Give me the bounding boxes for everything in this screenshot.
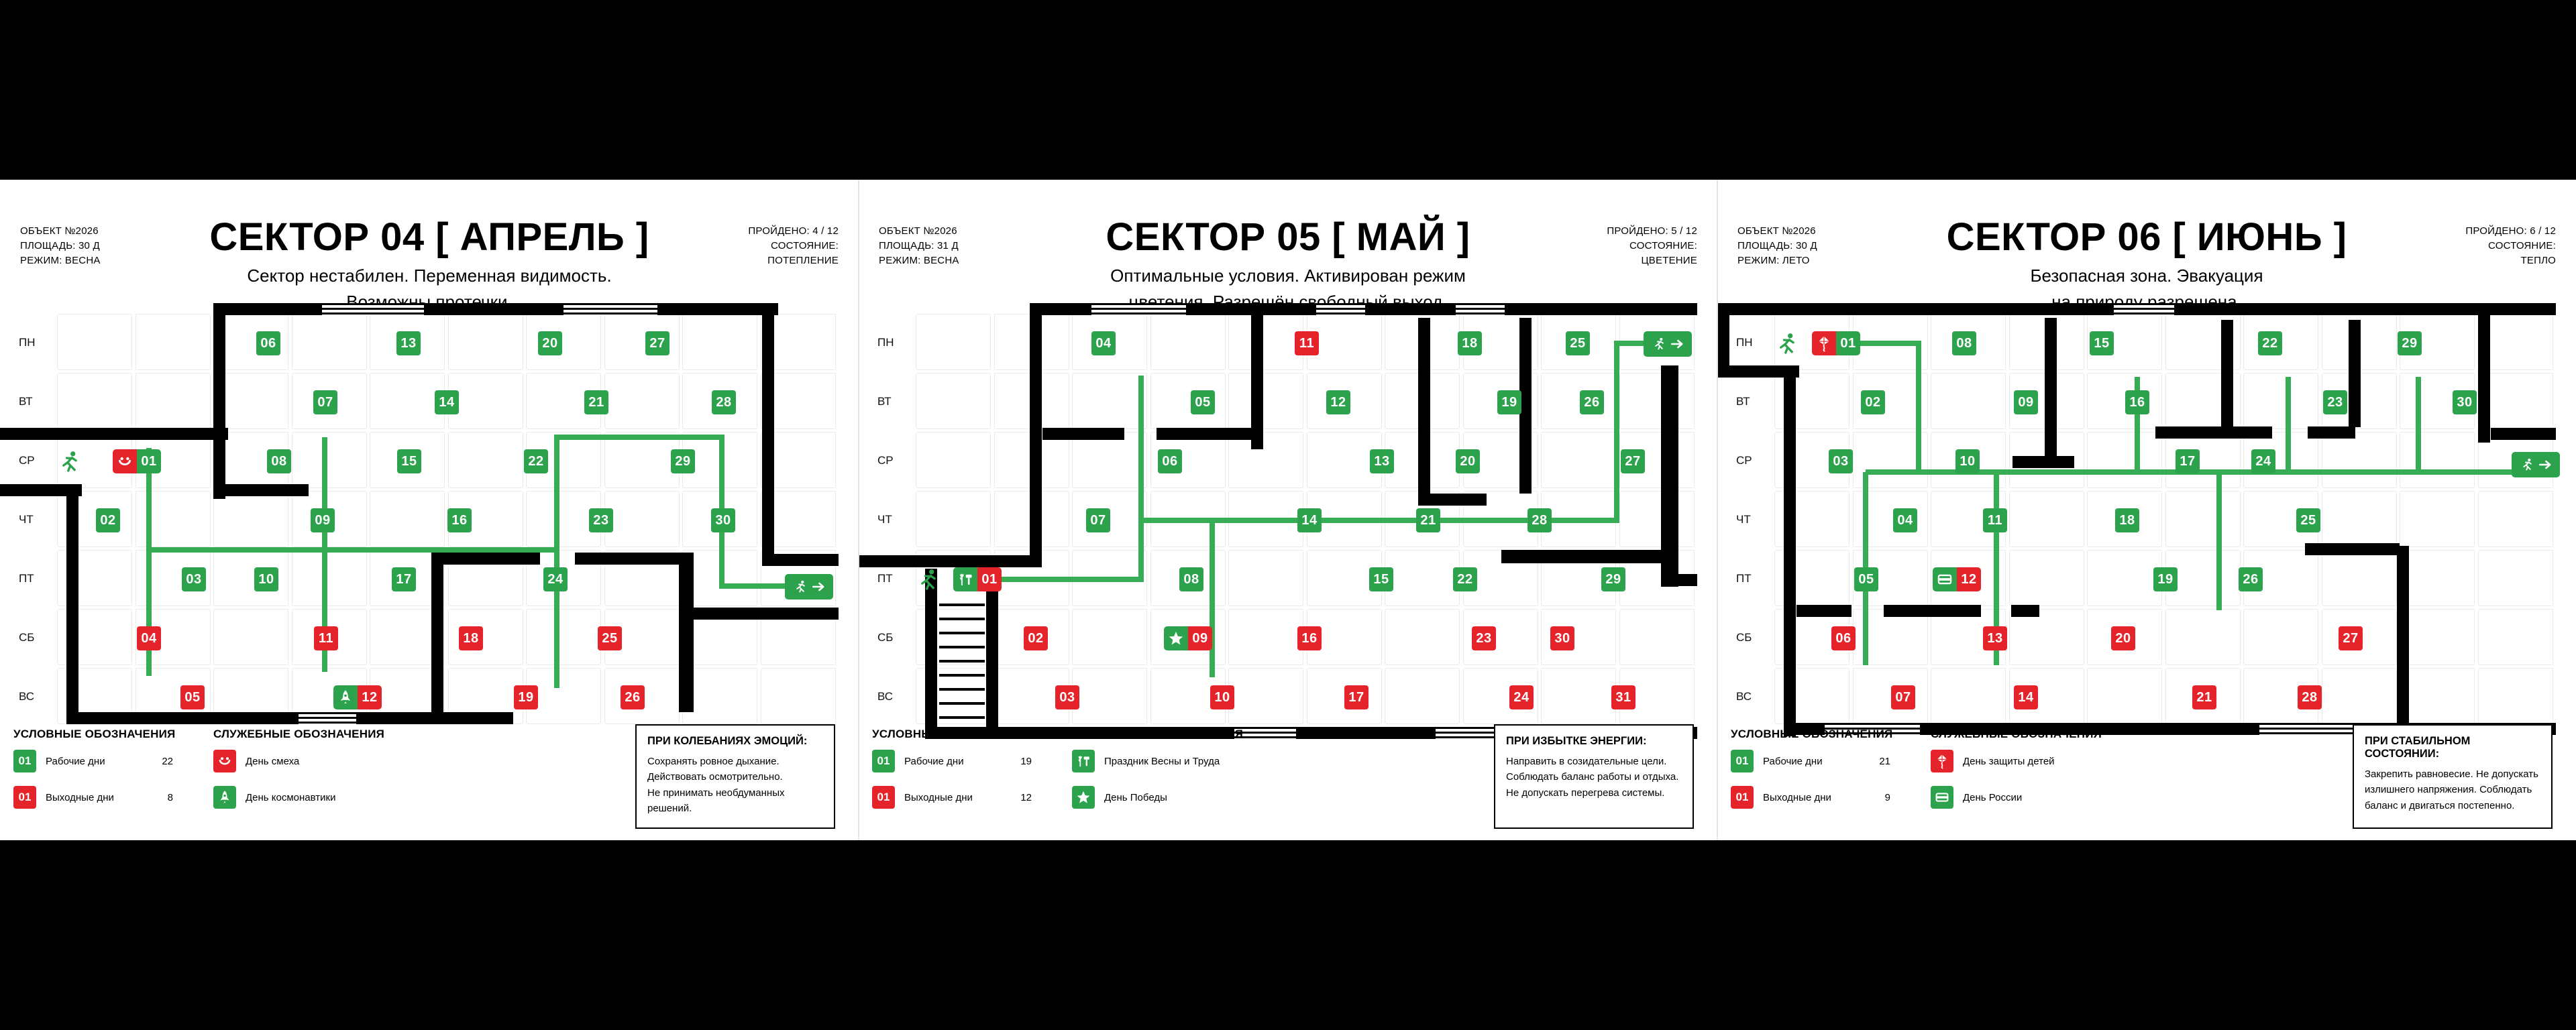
day-cell-with-holiday-icon: 12: [1933, 567, 1981, 591]
day-cell: 28: [712, 390, 736, 414]
calendar-cell: [2243, 373, 2318, 429]
day-cell: 27: [1621, 449, 1645, 473]
day-cell: 11: [1983, 508, 2007, 532]
calendar-cell: [1541, 432, 1616, 488]
legend-work-count: 21: [1860, 756, 1890, 767]
legend-holiday-count: 8: [142, 792, 173, 803]
legend-service-icon-smile: [213, 750, 236, 772]
day-number: 01: [1836, 331, 1860, 355]
day-cell: 13: [1370, 449, 1394, 473]
star-icon: [1075, 789, 1091, 805]
exit-sign: [2512, 452, 2560, 477]
day-number: 12: [358, 685, 382, 709]
running-man-icon: [915, 567, 941, 593]
day-cell: 21: [1416, 508, 1440, 532]
legend-work-label: Рабочие дни: [904, 756, 964, 767]
day-cell: 14: [2014, 685, 2038, 709]
calendar-cell: [2400, 668, 2475, 724]
weekday-label: СР: [1736, 454, 1771, 467]
calendar-cell: [292, 432, 367, 488]
legend-service-label: День Победы: [1104, 792, 1167, 803]
calendar-cell: [213, 491, 288, 547]
russia-flag-icon: [1934, 789, 1950, 805]
calendar-cell: [1072, 668, 1147, 724]
day-cell: 27: [645, 331, 669, 355]
calendar-cell: [604, 432, 680, 488]
star-icon: [1167, 630, 1185, 647]
note-title: ПРИ СТАБИЛЬНОМ СОСТОЯНИИ:: [2365, 735, 2540, 760]
status-meta-right: ПРОЙДЕНО: 6 / 12СОСТОЯНИЕ:ТЕПЛО: [2465, 224, 2556, 268]
legend-service-title: СЛУЖЕБНЫЕ ОБОЗНАЧЕНИЯ: [1072, 728, 1243, 741]
running-man-icon: [1652, 337, 1666, 351]
status-meta-line: ПРОЙДЕНО: 5 / 12: [1607, 224, 1697, 239]
exit-arrow-icon: [2538, 457, 2553, 472]
note-title: ПРИ КОЛЕБАНИЯХ ЭМОЦИЙ:: [647, 735, 823, 748]
calendar-cell: [1228, 668, 1303, 724]
note-line: Закрепить равновесие. Не допускать: [2365, 766, 2540, 782]
calendar-cell: [448, 314, 523, 370]
weekday-label: СБ: [19, 631, 54, 644]
legend-holiday-chip: 01: [1731, 786, 1754, 809]
day-cell: 18: [2115, 508, 2139, 532]
weekday-label: ВС: [1736, 690, 1771, 703]
legend-work-chip: 01: [872, 750, 895, 772]
floorplan-wall: [762, 554, 839, 566]
floorplan-wall: [66, 712, 513, 724]
day-cell: 26: [621, 685, 645, 709]
calendar-cell: [57, 373, 132, 429]
calendar-cell: [1150, 314, 1226, 370]
weekday-label: ЧТ: [877, 513, 912, 526]
floorplan-wall: [686, 608, 839, 620]
floorplan-wall: [2491, 428, 2556, 440]
calendar-cell: [2087, 373, 2162, 429]
day-cell: 19: [514, 685, 538, 709]
month-panel-may: ОБЪЕКТ №2026ПЛОЩАДЬ: 31 дРЕЖИМ: ВЕСНАСЕК…: [859, 180, 1717, 840]
floorplan-wall: [1042, 428, 1124, 440]
spring-icon-box: [953, 567, 977, 591]
calendar-cell: [1619, 491, 1695, 547]
calendar-cell: [1385, 668, 1460, 724]
running-man-icon: [56, 449, 82, 475]
day-cell: 08: [1952, 331, 1976, 355]
day-cell: 07: [1086, 508, 1110, 532]
day-cell: 04: [137, 626, 161, 650]
calendar-cell: [1228, 314, 1303, 370]
window-hatch: [2114, 303, 2174, 315]
instruction-note-box: ПРИ КОЛЕБАНИЯХ ЭМОЦИЙ:Сохранять ровное д…: [635, 724, 835, 829]
calendar-cell: [2478, 609, 2553, 665]
floorplan-wall: [1661, 574, 1697, 586]
calendar-cell: [2322, 668, 2397, 724]
legend-service-label: День защиты детей: [1963, 756, 2055, 767]
panel-divider: [858, 180, 859, 840]
exit-sign: [785, 574, 833, 599]
legend-holiday-label: Выходные дни: [904, 792, 973, 803]
floorplan-wall: [2155, 426, 2272, 439]
sector-subtitle-line: Оптимальные условия. Активирован режим: [859, 263, 1717, 289]
day-cell: 29: [2398, 331, 2422, 355]
calendar-poster-canvas: ОБЪЕКТ №2026ПЛОЩАДЬ: 30 дРЕЖИМ: ВЕСНАСЕК…: [0, 180, 2576, 840]
day-cell: 19: [1497, 390, 1521, 414]
rocket-icon: [337, 689, 354, 706]
day-cell: 14: [1297, 508, 1322, 532]
day-cell: 02: [1861, 390, 1885, 414]
day-cell: 24: [2251, 449, 2275, 473]
month-panel-june: ОБЪЕКТ №2026ПЛОЩАДЬ: 30 дРЕЖИМ: ЛЕТОСЕКТ…: [1717, 180, 2576, 840]
calendar-cell: [1853, 432, 1928, 488]
floorplan-wall: [762, 303, 774, 566]
status-meta-line: СОСТОЯНИЕ:: [1607, 239, 1697, 253]
day-cell: 30: [2453, 390, 2477, 414]
legend-holiday-label: Выходные дни: [46, 792, 114, 803]
status-meta-line: ТЕПЛО: [2465, 253, 2556, 268]
panel-divider: [1717, 180, 1718, 840]
day-cell: 02: [96, 508, 120, 532]
calendar-cell: [604, 491, 680, 547]
calendar-cell: [1072, 550, 1147, 606]
floorplan-wall: [213, 303, 225, 499]
calendar-cell: [682, 314, 757, 370]
weekday-label: СБ: [877, 631, 912, 644]
day-cell: 16: [447, 508, 472, 532]
floorplan-wall: [0, 428, 228, 440]
rocket-icon-box: [333, 685, 358, 709]
weekday-label: ВТ: [877, 395, 912, 408]
calendar-cell: [2478, 668, 2553, 724]
sector-title: СЕКТОР 06 [ ИЮНЬ ]: [1717, 215, 2576, 260]
floorplan-wall: [1796, 605, 1851, 617]
day-cell: 13: [1983, 626, 2007, 650]
sector-subtitle-line: Безопасная зона. Эвакуация: [1717, 263, 2576, 289]
sector-subtitle-line: Сектор нестабилен. Переменная видимость.: [0, 263, 859, 289]
floorplan-wall: [1501, 550, 1662, 563]
calendar-cell: [2400, 550, 2475, 606]
day-cell: 30: [1550, 626, 1574, 650]
weekday-label: ПТ: [19, 572, 54, 585]
day-cell: 14: [435, 390, 459, 414]
floorplan-wall: [66, 484, 78, 724]
calendar-cell: [1385, 609, 1460, 665]
calendar-cell: [2009, 609, 2084, 665]
floorplan-wall: [2305, 543, 2400, 555]
floorplan-wall: [2045, 318, 2057, 457]
day-cell: 30: [711, 508, 735, 532]
calendar-cell: [2087, 668, 2162, 724]
calendar-cell: [1619, 609, 1695, 665]
calendar-cell: [1150, 491, 1226, 547]
kite-icon-box: [1812, 331, 1836, 355]
status-meta-line: ПРОЙДЕНО: 6 / 12: [2465, 224, 2556, 239]
note-line: Действовать осмотрительно.: [647, 769, 823, 785]
day-cell-with-holiday-icon: 01: [953, 567, 1002, 591]
day-cell: 21: [584, 390, 608, 414]
weekday-label: ПН: [1736, 336, 1771, 349]
day-cell: 18: [1458, 331, 1482, 355]
floorplan-wall: [431, 553, 540, 565]
floorplan-wall: [1717, 303, 1729, 373]
calendar-cell: [1228, 609, 1303, 665]
day-cell: 20: [2111, 626, 2135, 650]
calendar-cell: [1072, 373, 1147, 429]
day-cell: 29: [1601, 567, 1625, 591]
calendar-cell: [2009, 550, 2084, 606]
day-cell: 08: [1179, 567, 1203, 591]
weekday-label: ПН: [19, 336, 54, 349]
legend-holiday-count: 12: [1001, 792, 1032, 803]
day-cell: 17: [392, 567, 416, 591]
legend-service-icon-star: [1072, 786, 1095, 809]
floorplan-wall: [986, 569, 998, 739]
exit-arrow-icon: [1670, 337, 1684, 351]
day-cell: 08: [267, 449, 291, 473]
calendar-cell: [1228, 432, 1303, 488]
day-cell: 06: [256, 331, 280, 355]
weekday-label: СР: [877, 454, 912, 467]
status-meta-line: СОСТОЯНИЕ:: [748, 239, 839, 253]
legend-holiday-label: Выходные дни: [1763, 792, 1831, 803]
status-meta-right: ПРОЙДЕНО: 5 / 12СОСТОЯНИЕ:ЦВЕТЕНИЕ: [1607, 224, 1697, 268]
calendar-cell: [916, 373, 991, 429]
legend-work-chip: 01: [1731, 750, 1754, 772]
window-hatch: [1316, 303, 1365, 315]
note-line: Соблюдать баланс работы и отдыха.: [1506, 769, 1682, 785]
floorplan-wall: [2011, 605, 2039, 617]
calendar-cell: [1541, 668, 1616, 724]
weekday-label: ЧТ: [19, 513, 54, 526]
calendar-cell: [2322, 550, 2397, 606]
day-cell: 19: [2153, 567, 2178, 591]
legend-holiday-count: 9: [1860, 792, 1890, 803]
legend-service-label: Праздник Весны и Труда: [1104, 756, 1220, 767]
day-cell: 20: [538, 331, 562, 355]
note-line: излишнего напряжения. Соблюдать: [2365, 782, 2540, 797]
day-cell: 17: [1344, 685, 1368, 709]
day-cell: 02: [1024, 626, 1048, 650]
day-cell: 25: [2296, 508, 2320, 532]
legend-service-icon-rocket: [213, 786, 236, 809]
day-cell: 29: [671, 449, 695, 473]
legend-holiday-chip: 01: [13, 786, 36, 809]
floorplan-wall: [2012, 456, 2074, 468]
day-cell: 20: [1456, 449, 1480, 473]
calendar-cell: [2165, 491, 2241, 547]
entry-runner-icon: [56, 449, 82, 475]
calendar-cell: [2009, 491, 2084, 547]
calendar-cell: [292, 550, 367, 606]
floorplan-wall: [679, 553, 694, 712]
floorplan-wall: [1157, 428, 1252, 440]
note-line: баланс и двигаться постепенно.: [2365, 798, 2540, 813]
weekday-label: СР: [19, 454, 54, 467]
day-cell: 05: [180, 685, 205, 709]
day-cell: 23: [589, 508, 613, 532]
calendar-cell: [916, 432, 991, 488]
weekday-label: ВТ: [19, 395, 54, 408]
floorplan-wall: [2221, 320, 2233, 427]
day-cell: 10: [1955, 449, 1980, 473]
legend-service-icon-spring: [1072, 750, 1095, 772]
floorplan-wall: [1784, 365, 1796, 736]
day-cell: 28: [2298, 685, 2322, 709]
calendar-cell: [1228, 491, 1303, 547]
calendar-cell: [1385, 550, 1460, 606]
calendar-cell: [1072, 432, 1147, 488]
calendar-cell: [526, 314, 601, 370]
day-cell: 05: [1854, 567, 1878, 591]
legend-service-label: День космонавтики: [246, 792, 335, 803]
day-cell-with-holiday-icon: 01: [1812, 331, 1860, 355]
calendar-cell: [1072, 609, 1147, 665]
calendar-cell: [1228, 373, 1303, 429]
weekday-label: ЧТ: [1736, 513, 1771, 526]
calendar-cell: [2243, 609, 2318, 665]
day-cell: 11: [1295, 331, 1319, 355]
legend-work-label: Рабочие дни: [1763, 756, 1823, 767]
calendar-cell: [1853, 609, 1928, 665]
legend-conditional-title: УСЛОВНЫЕ ОБОЗНАЧЕНИЯ: [1731, 728, 1892, 741]
day-cell: 06: [1831, 626, 1856, 650]
day-cell: 21: [2192, 685, 2216, 709]
day-cell: 13: [396, 331, 421, 355]
entry-runner-icon: [1774, 331, 1799, 357]
calendar-cell: [604, 373, 680, 429]
instruction-note-box: ПРИ ИЗБЫТКЕ ЭНЕРГИИ:Направить в созидате…: [1494, 724, 1694, 829]
calendar-cell: [2400, 609, 2475, 665]
weekday-label: ПТ: [1736, 572, 1771, 585]
day-cell-with-holiday-icon: 12: [333, 685, 382, 709]
instruction-note-box: ПРИ СТАБИЛЬНОМ СОСТОЯНИИ:Закрепить равно…: [2353, 724, 2553, 829]
floorplan-wall: [1418, 494, 1487, 506]
window-hatch: [299, 712, 356, 724]
note-line: Сохранять ровное дыхание.: [647, 754, 823, 769]
calendar-cell: [1853, 668, 1928, 724]
calendar-cell: [1619, 373, 1695, 429]
day-cell: 15: [1369, 567, 1393, 591]
calendar-cell: [2400, 432, 2475, 488]
spring-labor-icon: [1075, 753, 1091, 769]
day-cell: 25: [598, 626, 622, 650]
legend-service-label: День России: [1963, 792, 2022, 803]
calendar-cell: [370, 373, 445, 429]
running-man-icon: [2520, 457, 2534, 472]
sector-title: СЕКТОР 04 [ АПРЕЛЬ ]: [0, 215, 859, 260]
legend-work-count: 22: [142, 756, 173, 767]
calendar-cell: [2322, 432, 2397, 488]
month-panel-april: ОБЪЕКТ №2026ПЛОЩАДЬ: 30 дРЕЖИМ: ВЕСНАСЕК…: [0, 180, 859, 840]
legend-service-title: СЛУЖЕБНЫЕ ОБОЗНАЧЕНИЯ: [1931, 728, 2102, 741]
day-cell: 22: [1453, 567, 1477, 591]
day-cell: 11: [314, 626, 338, 650]
day-cell: 31: [1611, 685, 1635, 709]
day-cell: 27: [2339, 626, 2363, 650]
window-hatch: [2259, 723, 2359, 735]
spring-labor-icon: [957, 571, 974, 588]
calendar-cell: [448, 432, 523, 488]
legend-work-label: Рабочие дни: [46, 756, 105, 767]
calendar-cell: [1853, 314, 1928, 370]
window-hatch: [563, 303, 657, 315]
rocket-icon: [217, 789, 233, 805]
floorplan-wall: [213, 303, 778, 315]
stairs: [939, 604, 985, 724]
calendar-cell: [916, 314, 991, 370]
legend-work-count: 19: [1001, 756, 1032, 767]
day-number: 01: [137, 449, 161, 473]
calendar-cell: [2165, 609, 2241, 665]
calendar-cell: [2087, 550, 2162, 606]
floorplan-wall: [859, 555, 1031, 567]
day-cell: 28: [1527, 508, 1552, 532]
floorplan-wall: [1661, 365, 1678, 587]
day-cell: 16: [1297, 626, 1322, 650]
status-meta-line: ПРОЙДЕНО: 4 / 12: [748, 224, 839, 239]
calendar-cell: [292, 314, 367, 370]
floorplan-wall: [2397, 546, 2409, 738]
day-cell: 04: [1091, 331, 1116, 355]
calendar-cell: [1931, 668, 2006, 724]
smile-icon: [116, 453, 133, 470]
day-cell: 07: [1891, 685, 1915, 709]
window-hatch: [1456, 303, 1505, 315]
day-cell: 15: [2090, 331, 2114, 355]
weekday-label: СБ: [1736, 631, 1771, 644]
day-cell: 12: [1326, 390, 1350, 414]
status-meta-line: ЦВЕТЕНИЕ: [1607, 253, 1697, 268]
day-cell: 23: [1472, 626, 1496, 650]
weekday-label: ВС: [19, 690, 54, 703]
calendar-cell: [136, 491, 211, 547]
smile-icon: [217, 753, 233, 769]
day-cell: 09: [311, 508, 335, 532]
day-cell: 07: [313, 390, 337, 414]
legend-conditional-title: УСЛОВНЫЕ ОБОЗНАЧЕНИЯ: [872, 728, 1034, 741]
calendar-cell: [2478, 550, 2553, 606]
floorplan-wall: [1251, 303, 1263, 449]
calendar-cell: [1541, 491, 1616, 547]
note-line: Не допускать перегрева системы.: [1506, 785, 1682, 801]
calendar-cell: [370, 491, 445, 547]
window-hatch: [1234, 727, 1296, 739]
day-cell: 05: [1191, 390, 1215, 414]
calendar-cell: [2087, 432, 2162, 488]
calendar-cell: [136, 314, 211, 370]
kite-icon: [1815, 335, 1833, 352]
day-cell: 09: [2014, 390, 2038, 414]
day-cell: 23: [2323, 390, 2347, 414]
weekday-label: ПТ: [877, 572, 912, 585]
day-cell: 22: [524, 449, 548, 473]
calendar-cell: [1541, 373, 1616, 429]
calendar-cell: [2400, 491, 2475, 547]
calendar-cell: [448, 373, 523, 429]
calendar-cell: [761, 668, 836, 724]
day-cell: 04: [1893, 508, 1917, 532]
day-cell-with-holiday-icon: 09: [1164, 626, 1212, 650]
floorplan-wall: [431, 553, 443, 712]
sector-title: СЕКТОР 05 [ МАЙ ]: [859, 215, 1717, 260]
floorplan-wall: [213, 484, 309, 496]
day-number: 12: [1957, 567, 1981, 591]
weekday-label: ВТ: [1736, 395, 1771, 408]
status-meta-right: ПРОЙДЕНО: 4 / 12СОСТОЯНИЕ:ПОТЕПЛЕНИЕ: [748, 224, 839, 268]
russia-flag-icon: [1936, 571, 1953, 588]
day-cell: 15: [397, 449, 421, 473]
day-cell: 24: [1509, 685, 1534, 709]
day-cell: 26: [1580, 390, 1604, 414]
note-title: ПРИ ИЗБЫТКЕ ЭНЕРГИИ:: [1506, 735, 1682, 748]
running-man-icon: [793, 579, 808, 594]
